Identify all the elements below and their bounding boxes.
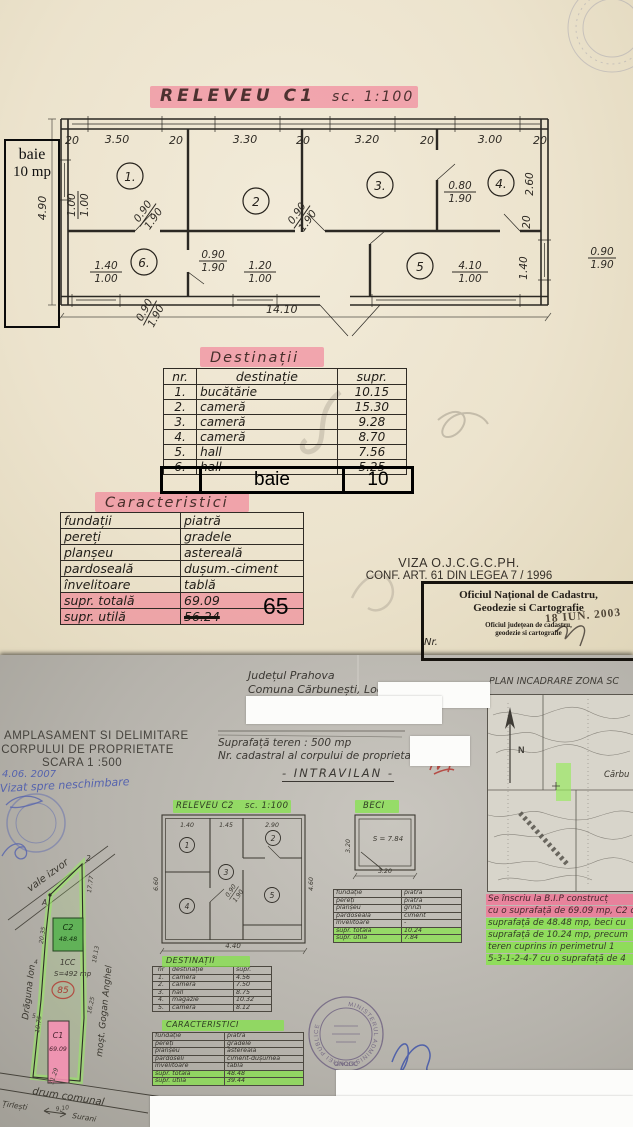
table-header-row: nr. destinație supr. bbox=[164, 369, 407, 385]
note-line: Se înscriu la B.I.P construcț bbox=[486, 894, 633, 905]
town-label: Cărbu bbox=[604, 770, 629, 780]
added-row-dest-cell: baie bbox=[202, 469, 345, 491]
svg-text:1.40: 1.40 bbox=[518, 256, 530, 280]
svg-text:C2: C2 bbox=[63, 923, 74, 932]
svg-text:1.40: 1.40 bbox=[180, 822, 194, 829]
svg-text:20: 20 bbox=[521, 215, 533, 229]
table-row: învelitoaretablă bbox=[153, 1063, 304, 1071]
table-cell: cameră bbox=[170, 974, 234, 982]
header-line2: A CORPULUI DE PROPRIETATE bbox=[0, 744, 189, 758]
table-cell: 3. bbox=[153, 989, 170, 997]
svg-text:85: 85 bbox=[57, 986, 69, 996]
table-cell: 39.44 bbox=[225, 1078, 304, 1086]
table-cell: pereți bbox=[153, 1040, 225, 1048]
caracteristici-title: Caracteristici bbox=[95, 495, 229, 511]
table-row: 2.cameră15.30 bbox=[164, 400, 407, 415]
table-cell: hall bbox=[197, 445, 338, 460]
svg-text:4.60: 4.60 bbox=[308, 877, 315, 891]
table-cell: 10.32 bbox=[234, 997, 272, 1005]
stamp-org-line1: Oficiul Național de Cadastru, bbox=[424, 589, 633, 602]
table-cell: astereală bbox=[181, 545, 304, 561]
svg-text:0.90: 0.90 bbox=[201, 249, 225, 261]
road-dir-right: Surani bbox=[72, 1111, 98, 1124]
table-row: fundațiepiatră bbox=[334, 890, 462, 898]
svg-text:3: 3 bbox=[224, 868, 229, 877]
map-topography: N Cărbu bbox=[488, 695, 633, 891]
added-row-supr-cell: 10 bbox=[345, 469, 411, 491]
table-row: planșeugrinzi bbox=[334, 905, 462, 913]
svg-text:20: 20 bbox=[65, 134, 79, 147]
svg-text:ONCGC: ONCGC bbox=[334, 1061, 359, 1068]
svg-text:69.09: 69.09 bbox=[49, 1046, 67, 1053]
building-c2: C2 48.48 bbox=[53, 918, 83, 951]
table-cell: 4. bbox=[153, 997, 170, 1005]
table-row: perețigradele bbox=[153, 1040, 304, 1048]
destinatii-title-highlight: Destinații bbox=[200, 347, 324, 367]
table-cell: gradele bbox=[225, 1040, 304, 1048]
svg-text:C1: C1 bbox=[53, 1031, 64, 1040]
svg-text:2: 2 bbox=[271, 834, 276, 843]
header-line1: AN AMPLASAMENT SI DELIMITARE bbox=[0, 730, 189, 744]
svg-text:0.80: 0.80 bbox=[448, 180, 472, 192]
table-cell: cameră bbox=[197, 430, 338, 445]
table-cell: 2. bbox=[153, 982, 170, 990]
table-cell: 10.15 bbox=[337, 385, 406, 400]
svg-text:4.10: 4.10 bbox=[458, 260, 482, 272]
table-cell: 7.84 bbox=[402, 935, 462, 943]
destinatii2-title-highlight: DESTINAȚII bbox=[162, 956, 250, 967]
table-row: pardosealăciment bbox=[334, 912, 462, 920]
table-cell: 1. bbox=[153, 974, 170, 982]
beci-plan: S = 7.84 3.20 3.20 bbox=[345, 815, 417, 879]
table-row: supr. utilă39.44 bbox=[153, 1078, 304, 1086]
note-line: suprafață de 10.24 mp, precum bbox=[486, 930, 633, 941]
caracteristici2-title-highlight: CARACTERISTICI bbox=[162, 1020, 284, 1031]
table-cell: fundație bbox=[153, 1033, 225, 1041]
svg-text:1.00: 1.00 bbox=[66, 193, 78, 217]
table-cell: magazie bbox=[170, 997, 234, 1005]
table-row: 1.bucătărie10.15 bbox=[164, 385, 407, 400]
plan-top-dimensions: 20 3.50 20 3.30 20 3.20 20 3.00 20 bbox=[65, 133, 547, 147]
table-cell: piatră bbox=[402, 890, 462, 898]
suprafata-line: Suprafață teren : 500 mp bbox=[218, 737, 428, 750]
table-row: 4.cameră8.70 bbox=[164, 430, 407, 445]
table-cell: 9.28 bbox=[337, 415, 406, 430]
table-row: 1.cameră4.56 bbox=[153, 974, 272, 982]
table-cell: tablă bbox=[225, 1063, 304, 1071]
table-cell: piatră bbox=[225, 1033, 304, 1041]
table-cell: învelitoare bbox=[334, 920, 402, 928]
table-cell: 10.24 bbox=[402, 927, 462, 935]
svg-text:N: N bbox=[518, 745, 525, 755]
svg-text:6.: 6. bbox=[138, 256, 149, 270]
table-cell: 48.48 bbox=[225, 1070, 304, 1078]
table-cell: 2. bbox=[164, 400, 197, 415]
stamp-sub-line1: Oficiul județean de cadastru, bbox=[424, 621, 633, 629]
svg-text:20: 20 bbox=[533, 134, 547, 147]
svg-text:3.20: 3.20 bbox=[355, 133, 380, 146]
page1-title-highlight: RELEVEU C1 sc. 1:100 bbox=[150, 86, 418, 108]
svg-text:2.90: 2.90 bbox=[265, 822, 279, 829]
parcel-highlight-on-map bbox=[556, 763, 571, 801]
caracteristici2-title: CARACTERISTICI bbox=[166, 1020, 239, 1029]
svg-text:4.: 4. bbox=[495, 177, 506, 191]
table-row: pardosealădușum.-ciment bbox=[61, 561, 304, 577]
table-cell: planșeu bbox=[61, 545, 181, 561]
table-cell: fundații bbox=[61, 513, 181, 529]
destinatii2-title: DESTINAȚII bbox=[166, 956, 215, 965]
surface-label: S=492 mp bbox=[54, 970, 92, 978]
note-line: suprafață de 48.48 mp, beci cu bbox=[486, 918, 633, 929]
table-cell: piatră bbox=[402, 897, 462, 905]
table-cell: 4. bbox=[164, 430, 197, 445]
table-cell: planșeu bbox=[334, 905, 402, 913]
table-header-row: nr destinație supr. bbox=[153, 967, 272, 975]
svg-text:3.: 3. bbox=[374, 179, 385, 193]
table-row: fundațiipiatră bbox=[61, 513, 304, 529]
table-cell: fundație bbox=[334, 890, 402, 898]
road-dir-left: Țirlești bbox=[2, 1099, 29, 1112]
plan-amplasament-header: AN AMPLASAMENT SI DELIMITARE A CORPULUI … bbox=[0, 730, 189, 771]
beci-title: BECI bbox=[363, 801, 385, 811]
releveu-c2-title-highlight: RELEVEU C2 sc. 1:100 bbox=[173, 800, 291, 813]
svg-text:5: 5 bbox=[416, 260, 424, 274]
svg-text:6.60: 6.60 bbox=[153, 877, 160, 891]
svg-text:A: A bbox=[41, 898, 47, 907]
baie-annotation-box: baie 10 mp bbox=[4, 139, 60, 328]
table-cell: pereți bbox=[334, 897, 402, 905]
table-cell: 3. bbox=[164, 415, 197, 430]
table-row: fundațiepiatră bbox=[153, 1033, 304, 1041]
col-destinatie: destinație bbox=[197, 369, 338, 385]
table-cell: supr. totală bbox=[153, 1070, 225, 1078]
note-line: 5-3-1-2-4-7 cu o suprafață de 4 bbox=[486, 954, 633, 965]
table-cell: ciment-dușumea bbox=[225, 1055, 304, 1063]
page-title: RELEVEU C1 bbox=[160, 86, 316, 106]
table-cell: cameră bbox=[170, 982, 234, 990]
table-cell: pardoseli bbox=[153, 1055, 225, 1063]
svg-text:18.13: 18.13 bbox=[91, 945, 101, 963]
owner-left-label: Drăguna Ion bbox=[21, 964, 38, 1021]
svg-text:17.77: 17.77 bbox=[86, 875, 95, 893]
vizat-date: 4.06. 2007 bbox=[2, 769, 56, 780]
ministry-round-stamp: MINISTERUL ADMINISTRAȚIEI PUBLICE ONCGC bbox=[309, 997, 383, 1071]
table-cell: hall bbox=[170, 989, 234, 997]
svg-text:1.90: 1.90 bbox=[448, 193, 472, 205]
table-cell: învelitoare bbox=[61, 577, 181, 593]
svg-text:2: 2 bbox=[86, 854, 91, 863]
table-cell: - bbox=[402, 920, 462, 928]
svg-text:2: 2 bbox=[252, 195, 260, 209]
table-cell: tablă bbox=[181, 577, 304, 593]
table-row: 4.magazie10.32 bbox=[153, 997, 272, 1005]
cc-label: 1CC bbox=[60, 958, 76, 967]
table-cell: pardoseală bbox=[61, 561, 181, 577]
svg-text:5: 5 bbox=[270, 891, 275, 900]
beci-table: fundațiepiatrăperețipiatrăplanșeugrinzip… bbox=[333, 889, 462, 943]
svg-text:48.48: 48.48 bbox=[59, 935, 78, 943]
table-row: supr. totală48.48 bbox=[153, 1070, 304, 1078]
svg-text:1.00: 1.00 bbox=[79, 193, 91, 217]
table-cell: 5. bbox=[164, 445, 197, 460]
beci-title-highlight: BECI bbox=[355, 800, 399, 813]
svg-text:9.10: 9.10 bbox=[55, 1104, 69, 1113]
owner-right-label: moșt. Gogan Anghel bbox=[95, 964, 115, 1057]
table-cell: 5. bbox=[153, 1004, 170, 1012]
caracteristici-title-highlight: Caracteristici bbox=[95, 492, 249, 512]
table-cell: 8.75 bbox=[234, 989, 272, 997]
caracteristici2-table: fundațiepiatrăperețigradeleplanșeuastere… bbox=[152, 1032, 304, 1086]
table-row: supr. utilă7.84 bbox=[334, 935, 462, 943]
table-cell: cameră bbox=[170, 1004, 234, 1012]
destinatii-table: nr. destinație supr. 1.bucătărie10.152.c… bbox=[163, 368, 407, 475]
svg-text:1.20: 1.20 bbox=[248, 260, 272, 272]
table-cell: 7.50 bbox=[234, 982, 272, 990]
redaction-box bbox=[246, 696, 442, 724]
table-cell: gradele bbox=[181, 529, 304, 545]
svg-text:1.00: 1.00 bbox=[458, 273, 482, 285]
table-row: 5.hall7.56 bbox=[164, 445, 407, 460]
judet-line: Județul Prahova bbox=[248, 669, 450, 683]
svg-text:4: 4 bbox=[185, 902, 190, 911]
table-row: 5.cameră8.12 bbox=[153, 1004, 272, 1012]
destinatii-title: Destinații bbox=[200, 350, 299, 366]
svg-text:20: 20 bbox=[296, 134, 310, 147]
table-row: planșeuastereală bbox=[153, 1048, 304, 1056]
stamp-sub-line2: geodezie si cartografie bbox=[424, 629, 633, 637]
page-title-scale: sc. 1:100 bbox=[332, 89, 414, 105]
svg-text:1.90: 1.90 bbox=[201, 262, 225, 274]
svg-text:S = 7.84: S = 7.84 bbox=[373, 835, 403, 843]
col-nr: nr. bbox=[164, 369, 197, 385]
redaction-box bbox=[150, 1096, 633, 1127]
table-cell: cameră bbox=[197, 415, 338, 430]
table-cell: supr. totală bbox=[334, 927, 402, 935]
svg-text:1.45: 1.45 bbox=[219, 822, 233, 829]
handwritten-note: Se înscriu la B.I.P construcț cu o supra… bbox=[486, 894, 633, 966]
svg-text:1.00: 1.00 bbox=[94, 273, 118, 285]
svg-text:1.: 1. bbox=[124, 170, 135, 184]
releveu-c2-title: RELEVEU C2 bbox=[176, 801, 234, 811]
table-row: supr. totală10.24 bbox=[334, 927, 462, 935]
added-row-nr-cell bbox=[163, 469, 202, 491]
svg-text:1.00: 1.00 bbox=[248, 273, 272, 285]
table-cell: piatră bbox=[181, 513, 304, 529]
corrected-value: 65 bbox=[263, 593, 289, 620]
destinatii2-table: nr destinație supr. 1.cameră4.562.cameră… bbox=[152, 966, 272, 1012]
table-cell: supr. utilă bbox=[61, 609, 181, 625]
table-cell: pardoseală bbox=[334, 912, 402, 920]
baie-label: baie bbox=[6, 146, 58, 164]
table-cell: planșeu bbox=[153, 1048, 225, 1056]
table-cell: dușum.-ciment bbox=[181, 561, 304, 577]
table-cell: 8.12 bbox=[234, 1004, 272, 1012]
location-map: N Cărbu bbox=[487, 694, 633, 892]
svg-text:14.10: 14.10 bbox=[266, 303, 298, 316]
table-cell: 7.56 bbox=[337, 445, 406, 460]
viza-text: VIZA O.J.C.G.C.PH. CONF. ART. 61 DIN LEG… bbox=[350, 556, 568, 582]
table-cell: bucătărie bbox=[197, 385, 338, 400]
table-row: pardoseliciment-dușumea bbox=[153, 1055, 304, 1063]
viza-line1: VIZA O.J.C.G.C.PH. bbox=[350, 556, 568, 570]
table-cell: cameră bbox=[197, 400, 338, 415]
svg-text:1.40: 1.40 bbox=[94, 260, 118, 272]
col-supr: supr. bbox=[337, 369, 406, 385]
svg-text:20: 20 bbox=[420, 134, 434, 147]
svg-text:1: 1 bbox=[185, 841, 190, 850]
table-row: planșeuastereală bbox=[61, 545, 304, 561]
note-line: teren cuprins in perimetrul 1 bbox=[486, 942, 633, 953]
intravilan-label: - INTRAVILAN - bbox=[282, 766, 394, 782]
table-cell: pereți bbox=[61, 529, 181, 545]
redaction-box bbox=[410, 736, 470, 766]
svg-text:3.00: 3.00 bbox=[478, 133, 503, 146]
svg-text:3.30: 3.30 bbox=[233, 133, 258, 146]
scanned-cadastral-document: 20 3.50 20 3.30 20 3.20 20 3.00 20 4.90 … bbox=[0, 0, 633, 1127]
table-row: 2.cameră7.50 bbox=[153, 982, 272, 990]
table-row: învelitoaretablă bbox=[61, 577, 304, 593]
svg-text:3.20: 3.20 bbox=[378, 868, 392, 875]
corner-stamp-icon bbox=[568, 0, 633, 72]
table-row: 3.hall8.75 bbox=[153, 989, 272, 997]
col-destinatie: destinație bbox=[170, 967, 234, 975]
table-cell: 8.70 bbox=[337, 430, 406, 445]
table-row: 3.cameră9.28 bbox=[164, 415, 407, 430]
table-cell: supr. totală bbox=[61, 593, 181, 609]
releveu-c2-scale: sc. 1:100 bbox=[245, 801, 289, 811]
table-cell: 4.56 bbox=[234, 974, 272, 982]
cadastru-stamp-box: Oficiul Național de Cadastru, Geodezie s… bbox=[421, 581, 633, 661]
col-nr: nr bbox=[153, 967, 170, 975]
table-cell: astereală bbox=[225, 1048, 304, 1056]
surface-info: Suprafață teren : 500 mp Nr. cadastral a… bbox=[218, 737, 428, 763]
svg-text:4.40: 4.40 bbox=[225, 942, 241, 950]
table-cell: 15.30 bbox=[337, 400, 406, 415]
table-cell: 1. bbox=[164, 385, 197, 400]
baie-added-table-row: baie 10 bbox=[160, 466, 414, 494]
table-cell: grinzi bbox=[402, 905, 462, 913]
nr-cadastral-line: Nr. cadastral al corpului de proprietate… bbox=[218, 750, 428, 763]
table-row: învelitoare- bbox=[334, 920, 462, 928]
map-title: PLAN INCADRARE ZONĂ SC bbox=[489, 676, 633, 687]
table-row: perețigradele bbox=[61, 529, 304, 545]
col-supr: supr. bbox=[234, 967, 272, 975]
baie-area: 10 mp bbox=[6, 164, 58, 181]
svg-text:1.90: 1.90 bbox=[590, 259, 614, 271]
floor-plan-c2: 1 2 3 4 5 1.40 1.45 2.90 4.40 4.60 6.60 … bbox=[153, 815, 315, 954]
svg-text:2.60: 2.60 bbox=[524, 172, 536, 196]
note-line: cu o suprafață de 69.09 mp, C2 c bbox=[486, 906, 633, 917]
svg-text:20: 20 bbox=[169, 134, 183, 147]
table-cell: ciment bbox=[402, 912, 462, 920]
svg-text:3.50: 3.50 bbox=[105, 133, 130, 146]
table-cell: supr. utilă bbox=[153, 1078, 225, 1086]
svg-text:0.90: 0.90 bbox=[590, 246, 614, 258]
table-cell: supr. utilă bbox=[334, 935, 402, 943]
table-row: perețipiatră bbox=[334, 897, 462, 905]
svg-text:3.20: 3.20 bbox=[345, 839, 352, 853]
svg-text:16.25: 16.25 bbox=[86, 996, 96, 1014]
table-cell: învelitoare bbox=[153, 1063, 225, 1071]
